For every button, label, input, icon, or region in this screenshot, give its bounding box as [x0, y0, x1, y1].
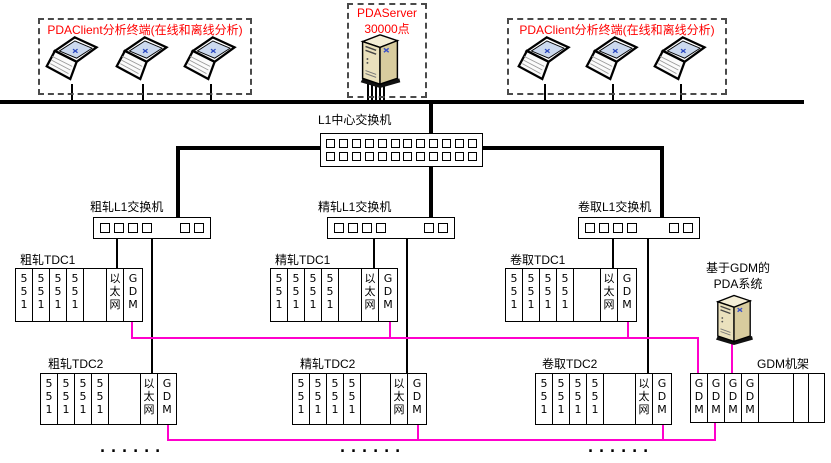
port-group	[424, 223, 448, 233]
connection-line	[429, 104, 433, 134]
connection-line	[116, 239, 118, 268]
connection-line	[373, 239, 375, 268]
port-group	[180, 223, 204, 233]
tdc-cell-551: 5 5 1	[288, 269, 305, 321]
switch-port	[334, 223, 344, 233]
central-switch	[320, 133, 483, 167]
gdm-link-line	[627, 322, 629, 338]
laptop-icon	[114, 34, 172, 86]
tdc-cell-551: 5 5 1	[327, 374, 344, 424]
connection-line	[429, 166, 433, 217]
laptop-icon	[44, 34, 102, 86]
switch-port	[365, 152, 374, 161]
gdm-rack: G D M G D M G D M G D M	[690, 373, 825, 423]
laptop-icon	[652, 34, 710, 86]
switch-port	[391, 139, 400, 148]
switch-port	[339, 152, 348, 161]
server-tower-icon	[356, 30, 404, 88]
switch-port	[627, 223, 637, 233]
branch-switch-coiling	[578, 217, 700, 239]
port-group	[585, 223, 637, 233]
laptop-icon	[516, 34, 574, 86]
tdc-cell-empty	[604, 374, 636, 424]
tdc-box-roughing-1: 5 5 1 5 5 1 5 5 1 5 5 1 以 太 网 G D M	[15, 268, 143, 322]
tdc-cell-ethernet: 以 太 网	[362, 269, 379, 321]
server-tower-icon	[712, 291, 756, 345]
tdc-cell-551: 5 5 1	[322, 269, 339, 321]
tdc-cell-551: 5 5 1	[271, 269, 288, 321]
tdc-label: 精轧TDC2	[300, 355, 355, 372]
tdc-cell-551: 5 5 1	[536, 374, 553, 424]
branch-switch-label-finishing: 精轧L1交换机	[318, 198, 391, 215]
tdc-cell-gdm: G D M	[158, 374, 176, 424]
connection-line	[612, 239, 614, 268]
port-group	[100, 223, 152, 233]
port-group	[334, 223, 386, 233]
switch-port	[194, 223, 204, 233]
tdc-cell-551: 5 5 1	[506, 269, 523, 321]
tdc-cell-551: 5 5 1	[540, 269, 557, 321]
tdc-box-roughing-2: 5 5 1 5 5 1 5 5 1 5 5 1 以 太 网 G D M	[40, 373, 177, 425]
switch-port	[376, 223, 386, 233]
switch-port	[442, 139, 451, 148]
switch-port	[416, 139, 425, 148]
switch-port	[362, 223, 372, 233]
tdc-label: 粗轧TDC1	[20, 251, 75, 268]
tdc-label: 卷取TDC2	[542, 355, 597, 372]
gdm-pda-label-line1: 基于GDM的	[690, 259, 786, 276]
switch-port	[326, 152, 335, 161]
tdc-cell-551: 5 5 1	[16, 269, 33, 321]
switch-port	[683, 223, 693, 233]
tdc-cell-551: 5 5 1	[587, 374, 604, 424]
tdc-cell-551: 5 5 1	[344, 374, 361, 424]
tdc-label: 粗轧TDC2	[48, 355, 103, 372]
tdc-cell-empty	[574, 269, 601, 321]
central-switch-label: L1中心交换机	[318, 111, 391, 128]
switch-port	[455, 139, 464, 148]
tdc-cell-551: 5 5 1	[570, 374, 587, 424]
switch-port	[180, 223, 190, 233]
gdm-rack-cell-empty	[759, 374, 794, 422]
continuation-ellipsis: ......	[586, 438, 652, 456]
port-group	[669, 223, 693, 233]
gdm-rack-label: GDM机架	[757, 355, 809, 372]
tdc-label: 卷取TDC1	[510, 251, 565, 268]
tdc-cell-empty	[339, 269, 362, 321]
tdc-cell-gdm: G D M	[124, 269, 142, 321]
gdm-rack-cell-gdm: G D M	[691, 374, 708, 422]
pda-server-label-line1: PDAServer	[347, 6, 427, 20]
branch-switch-roughing	[93, 217, 211, 239]
gdm-rack-cell-empty	[809, 374, 824, 422]
tdc-cell-551: 5 5 1	[41, 374, 58, 424]
tdc-label: 精轧TDC1	[275, 251, 330, 268]
tdc-cell-empty	[109, 374, 141, 424]
connection-line	[647, 239, 649, 373]
diagram-canvas: PDAClient分析终端(在线和离线分析) PDAServer 30000点 …	[0, 0, 831, 463]
switch-port	[403, 152, 412, 161]
gdm-link-line	[167, 425, 169, 440]
branch-switch-label-roughing: 粗轧L1交换机	[90, 198, 163, 215]
gdm-link-line	[662, 425, 664, 440]
switch-port	[352, 139, 361, 148]
gdm-rack-cell-gdm: G D M	[742, 374, 759, 422]
connection-line	[176, 146, 322, 150]
switch-port	[438, 223, 448, 233]
switch-port	[429, 139, 438, 148]
tdc-cell-ethernet: 以 太 网	[107, 269, 124, 321]
tdc-cell-empty	[361, 374, 391, 424]
laptop-icon	[584, 34, 642, 86]
switch-port	[585, 223, 595, 233]
switch-port	[391, 152, 400, 161]
switch-port	[142, 223, 152, 233]
tdc-cell-ethernet: 以 太 网	[601, 269, 618, 321]
tdc-cell-551: 5 5 1	[33, 269, 50, 321]
switch-port	[378, 152, 387, 161]
connection-line	[176, 146, 180, 217]
tdc-cell-551: 5 5 1	[305, 269, 322, 321]
tdc-cell-551: 5 5 1	[50, 269, 67, 321]
tdc-box-finishing-1: 5 5 1 5 5 1 5 5 1 5 5 1 以 太 网 G D M	[270, 268, 398, 322]
switch-port	[100, 223, 110, 233]
gdm-link-line	[131, 322, 133, 338]
switch-port	[352, 152, 361, 161]
switch-port	[365, 139, 374, 148]
switch-port	[669, 223, 679, 233]
switch-port	[599, 223, 609, 233]
tdc-cell-551: 5 5 1	[523, 269, 540, 321]
branch-switch-label-coiling: 卷取L1交换机	[578, 198, 651, 215]
tdc-cell-gdm: G D M	[408, 374, 426, 424]
switch-port	[429, 152, 438, 161]
tdc-cell-gdm: G D M	[618, 269, 636, 321]
tdc-box-coiling-2: 5 5 1 5 5 1 5 5 1 5 5 1 以 太 网 G D M	[535, 373, 672, 425]
connection-line	[660, 146, 664, 217]
switch-port	[424, 223, 434, 233]
tdc-cell-551: 5 5 1	[67, 269, 84, 321]
gdm-link-line	[417, 425, 419, 440]
connection-line	[151, 239, 153, 373]
switch-port	[442, 152, 451, 161]
gdm-pda-label-line2: PDA系统	[690, 275, 786, 292]
continuation-ellipsis: ......	[98, 438, 164, 456]
gdm-link-line	[697, 337, 699, 373]
gdm-link-line	[714, 423, 716, 440]
connection-line	[406, 239, 408, 373]
switch-port	[455, 152, 464, 161]
connection-line	[481, 146, 664, 150]
switch-port	[326, 139, 335, 148]
laptop-icon	[182, 34, 240, 86]
switch-port	[468, 152, 477, 161]
gdm-rack-cell-empty	[794, 374, 809, 422]
tdc-cell-gdm: G D M	[653, 374, 671, 424]
continuation-ellipsis: ......	[338, 438, 404, 456]
tdc-cell-gdm: G D M	[379, 269, 397, 321]
tdc-cell-551: 5 5 1	[58, 374, 75, 424]
tdc-cell-551: 5 5 1	[557, 269, 574, 321]
switch-port	[403, 139, 412, 148]
tdc-box-finishing-2: 5 5 1 5 5 1 5 5 1 5 5 1 以 太 网 G D M	[292, 373, 427, 425]
tdc-cell-551: 5 5 1	[92, 374, 109, 424]
backbone-bus-line	[0, 100, 804, 104]
switch-port	[468, 139, 477, 148]
branch-switch-finishing	[327, 217, 455, 239]
tdc-cell-551: 5 5 1	[553, 374, 570, 424]
tdc-box-coiling-1: 5 5 1 5 5 1 5 5 1 5 5 1 以 太 网 G D M	[505, 268, 637, 322]
switch-port	[114, 223, 124, 233]
tdc-cell-551: 5 5 1	[75, 374, 92, 424]
switch-port	[378, 139, 387, 148]
switch-port	[339, 139, 348, 148]
switch-port	[416, 152, 425, 161]
gdm-link-line	[389, 322, 391, 338]
switch-port	[128, 223, 138, 233]
tdc-cell-ethernet: 以 太 网	[636, 374, 653, 424]
switch-port	[613, 223, 623, 233]
gdm-link-line	[131, 337, 699, 339]
tdc-cell-ethernet: 以 太 网	[391, 374, 408, 424]
switch-port	[348, 223, 358, 233]
gdm-rack-cell-gdm: G D M	[725, 374, 742, 422]
tdc-cell-551: 5 5 1	[293, 374, 310, 424]
tdc-cell-empty	[84, 269, 107, 321]
tdc-cell-ethernet: 以 太 网	[141, 374, 158, 424]
gdm-rack-cell-gdm: G D M	[708, 374, 725, 422]
tdc-cell-551: 5 5 1	[310, 374, 327, 424]
